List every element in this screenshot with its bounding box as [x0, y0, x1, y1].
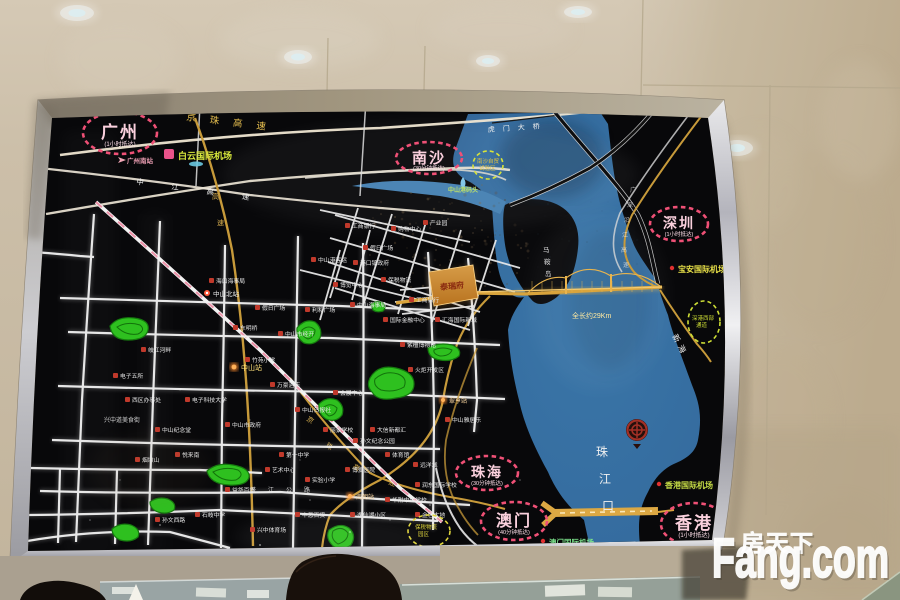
svg-text:香港: 香港 [675, 513, 713, 533]
svg-text:白云国际机场: 白云国际机场 [178, 150, 232, 161]
svg-text:江: 江 [599, 472, 611, 486]
svg-text:珠: 珠 [596, 445, 609, 459]
svg-text:工商银行: 工商银行 [352, 222, 375, 230]
svg-text:深: 深 [627, 201, 633, 209]
svg-text:鞍: 鞍 [544, 257, 551, 266]
svg-text:产业园: 产业园 [430, 219, 448, 227]
svg-text:岐江公路: 岐江公路 [250, 486, 322, 494]
svg-text:口: 口 [602, 499, 614, 513]
svg-text:(1小时抵达): (1小时抵达) [104, 140, 135, 148]
svg-text:南朗站: 南朗站 [356, 493, 374, 501]
svg-text:中山站: 中山站 [241, 363, 262, 372]
svg-text:中山市政府: 中山市政府 [232, 421, 261, 429]
svg-text:澳门: 澳门 [496, 511, 532, 530]
svg-text:兴中道美食街: 兴中道美食街 [104, 416, 140, 424]
svg-text:紫檀博物馆: 紫檀博物馆 [407, 341, 436, 349]
svg-text:江: 江 [622, 232, 628, 239]
svg-text:远洋城: 远洋城 [420, 461, 438, 469]
svg-text:西区办事处: 西区办事处 [132, 396, 161, 404]
svg-text:华附中山学校: 华附中山学校 [392, 496, 427, 504]
svg-text:岐江河畔: 岐江河畔 [148, 346, 171, 354]
svg-text:翠亨站: 翠亨站 [449, 397, 467, 405]
svg-text:中山海事局: 中山海事局 [357, 301, 386, 309]
svg-text:国际金融中心: 国际金融中心 [390, 316, 425, 324]
svg-text:工商银行: 工商银行 [416, 296, 439, 304]
svg-text:高: 高 [212, 192, 219, 201]
svg-text:中山市经开: 中山市经开 [285, 330, 314, 338]
svg-text:孙文西路: 孙文西路 [162, 516, 185, 524]
svg-text:(1小时抵达): (1小时抵达) [678, 531, 709, 539]
svg-text:全长约29Km: 全长约29Km [572, 311, 611, 320]
svg-text:岛: 岛 [545, 269, 552, 278]
svg-text:博览中心: 博览中心 [340, 281, 363, 289]
svg-text:实验小学: 实验小学 [312, 476, 335, 484]
svg-text:广州南站: 广州南站 [127, 156, 154, 165]
svg-text:润东国际学校: 润东国际学校 [422, 481, 457, 489]
svg-text:中山雅居乐: 中山雅居乐 [452, 416, 481, 424]
svg-text:速: 速 [623, 262, 629, 269]
svg-text:港口镇政府: 港口镇政府 [360, 259, 389, 267]
svg-text:广州: 广州 [101, 122, 139, 142]
svg-text:购物中心: 购物中心 [398, 225, 421, 233]
svg-text:中山北站: 中山北站 [213, 289, 240, 298]
svg-text:中山日报社: 中山日报社 [302, 406, 331, 414]
svg-text:深圳: 深圳 [663, 215, 695, 231]
svg-text:深港西部: 深港西部 [692, 314, 715, 322]
svg-text:艺术中心: 艺术中心 [272, 466, 295, 474]
svg-text:珠海: 珠海 [471, 464, 503, 480]
svg-text:保税物流: 保税物流 [388, 276, 411, 284]
svg-text:万豪酒店: 万豪酒店 [277, 381, 300, 389]
svg-text:孙文纪念公园: 孙文纪念公园 [360, 437, 395, 445]
svg-text:博爱医院: 博爱医院 [352, 466, 375, 474]
svg-text:(40分钟抵达): (40分钟抵达) [498, 528, 530, 536]
svg-text:第一中学: 第一中学 [286, 451, 309, 459]
svg-text:海口海事局: 海口海事局 [216, 277, 245, 285]
svg-text:假日广场: 假日广场 [262, 304, 285, 312]
svg-text:汇海国际新城: 汇海国际新城 [442, 316, 477, 324]
svg-text:沿: 沿 [624, 216, 630, 224]
svg-text:Fang.com: Fang.com [712, 528, 889, 590]
svg-text:利和广场: 利和广场 [312, 306, 335, 314]
svg-text:会展中心: 会展中心 [340, 389, 363, 397]
svg-text:南沙自贸: 南沙自贸 [477, 157, 500, 165]
svg-text:电子五所: 电子五所 [120, 372, 143, 380]
svg-text:试验区: 试验区 [479, 164, 496, 172]
svg-text:广: 广 [630, 186, 636, 194]
svg-text:竹苑小学: 竹苑小学 [252, 356, 275, 364]
svg-text:(1小时抵达): (1小时抵达) [665, 230, 694, 238]
svg-text:中山港码头: 中山港码头 [448, 186, 478, 194]
svg-text:南沙: 南沙 [412, 149, 446, 167]
svg-text:火炬开发区: 火炬开发区 [415, 366, 444, 374]
svg-text:香港国际机场: 香港国际机场 [664, 480, 713, 490]
svg-text:高: 高 [621, 246, 627, 254]
svg-text:大信新都汇: 大信新都汇 [377, 426, 406, 434]
svg-text:电子科技大学: 电子科技大学 [192, 396, 227, 404]
svg-text:(30分钟抵达): (30分钟抵达) [471, 479, 503, 487]
svg-text:通道: 通道 [696, 321, 708, 329]
svg-text:中山港客运: 中山港客运 [318, 256, 347, 264]
svg-text:速: 速 [217, 219, 224, 227]
svg-text:东明桥: 东明桥 [240, 324, 258, 332]
svg-text:假日广场: 假日广场 [370, 244, 393, 252]
svg-text:体育馆: 体育馆 [392, 451, 410, 459]
svg-text:丽景学校: 丽景学校 [330, 426, 353, 434]
svg-text:宝安国际机场: 宝安国际机场 [678, 264, 726, 274]
svg-text:石岐中学: 石岐中学 [202, 511, 225, 519]
svg-text:(30分钟抵达): (30分钟抵达) [413, 164, 445, 172]
svg-text:马: 马 [543, 246, 550, 254]
